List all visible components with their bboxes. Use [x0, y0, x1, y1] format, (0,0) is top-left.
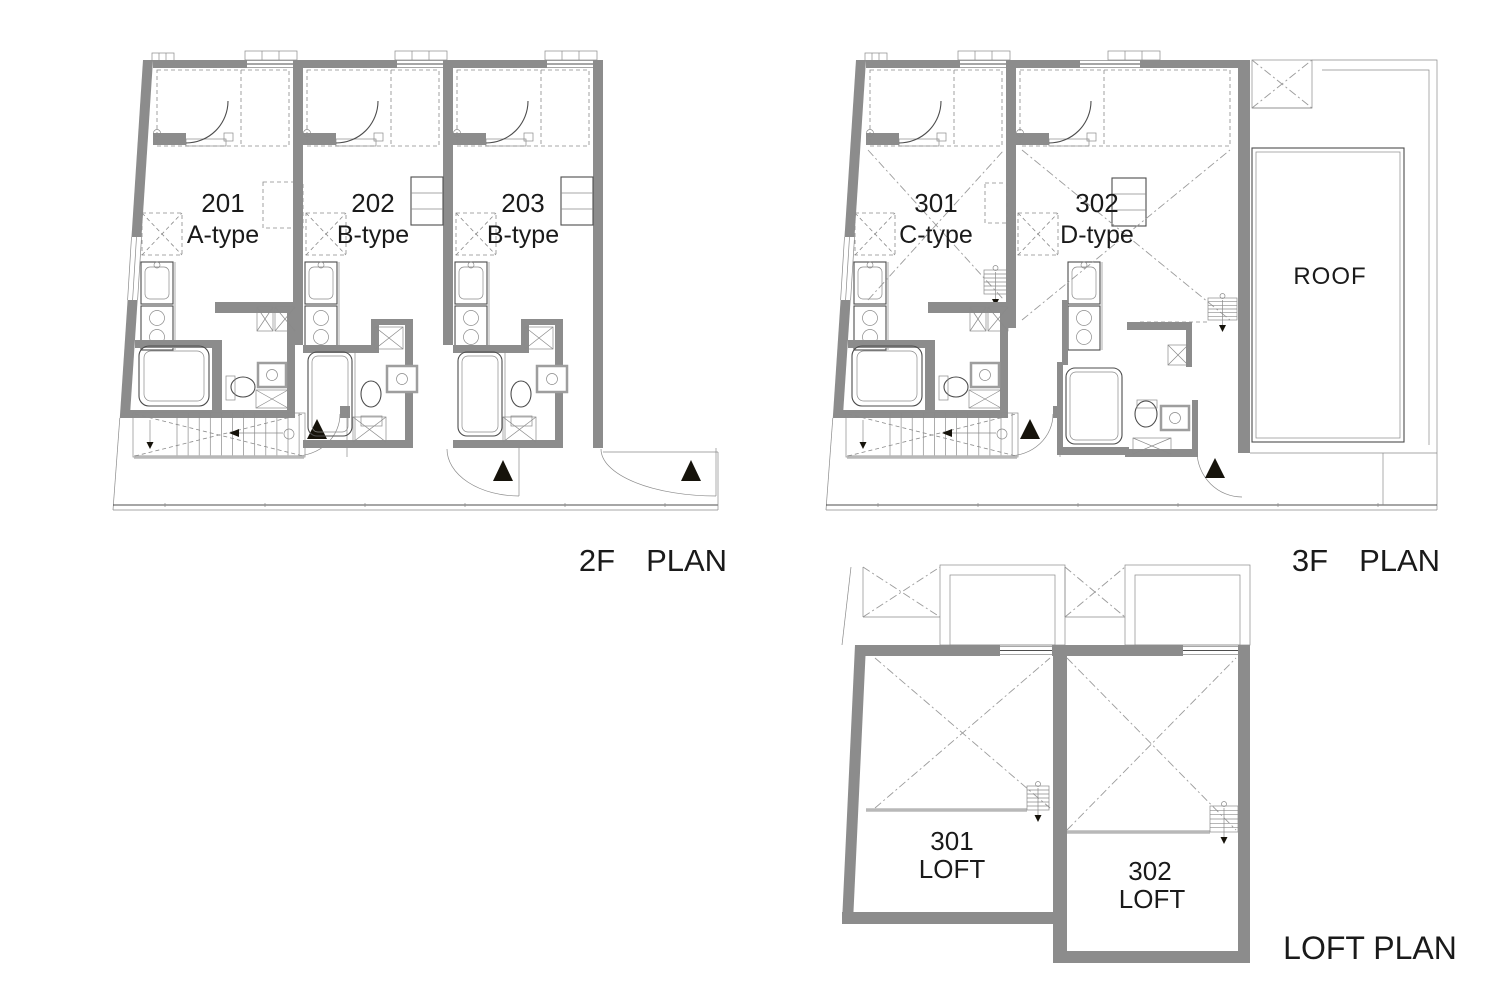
plan-2f-geometry	[113, 51, 718, 510]
bathtub	[458, 352, 502, 436]
roof-area-label: ROOF	[1293, 263, 1366, 290]
kitchen-sink	[455, 262, 487, 304]
plan-loft-labels: 301 LOFT 302 LOFT LOFT PLAN	[919, 826, 1457, 966]
bathroom-a	[842, 302, 1063, 457]
kitchen-sink	[305, 262, 337, 304]
unit-203-number: 203	[501, 188, 544, 218]
washer-space	[1018, 213, 1058, 255]
loft-302-label: LOFT	[1119, 884, 1186, 914]
washer-space	[142, 213, 182, 255]
bathtub	[1066, 368, 1122, 444]
entry-marker-icon	[1020, 419, 1040, 439]
loft-301-number: 301	[930, 826, 973, 856]
vanity-sink	[971, 363, 999, 387]
loft-302-number: 302	[1128, 856, 1171, 886]
vanity-sink	[387, 366, 417, 392]
kitchen-sink	[1068, 262, 1100, 304]
entry-marker-icon	[493, 460, 513, 481]
floorplan-sheet: 201 A-type 202 B-type 203 B-type 2F PLAN…	[0, 0, 1500, 1000]
bathroom-a	[129, 302, 350, 457]
entry-marker-icon	[681, 460, 701, 481]
loft-301-label: LOFT	[919, 854, 986, 884]
washer-space	[855, 213, 895, 255]
floorplan-drawing: 201 A-type 202 B-type 203 B-type 2F PLAN…	[0, 0, 1500, 1000]
loft-ladder	[1208, 294, 1237, 333]
stove	[1068, 306, 1100, 350]
bathroom-b	[453, 319, 567, 448]
plan-loft-geometry	[842, 565, 1250, 963]
unit-interior	[1016, 51, 1230, 350]
unit-201-type: A-type	[187, 221, 259, 249]
staircase	[846, 413, 1018, 457]
unit-301-number: 301	[914, 188, 957, 218]
toilet	[939, 376, 968, 400]
vanity-sink	[537, 366, 567, 392]
toilet	[361, 381, 382, 426]
kitchen-sink	[141, 262, 173, 304]
bathtub	[308, 352, 352, 436]
bathtub	[139, 346, 209, 406]
unit-202-number: 202	[351, 188, 394, 218]
plan-3f-title: 3F PLAN	[1292, 543, 1440, 578]
site-boundary-2f	[113, 418, 718, 510]
unit-302-type: D-type	[1060, 221, 1134, 249]
vanity-sink	[258, 363, 286, 387]
staircase	[133, 413, 305, 457]
plan-loft-title: LOFT PLAN	[1283, 930, 1457, 966]
toilet	[1135, 400, 1157, 427]
vanity-sink	[1161, 406, 1189, 430]
unit-302-number: 302	[1075, 188, 1118, 218]
unit-301-type: C-type	[899, 221, 973, 249]
unit-202-type: B-type	[337, 221, 409, 249]
bathtub	[852, 346, 922, 406]
loft-ladder	[1027, 782, 1049, 823]
loft-ladder	[984, 266, 1007, 307]
unit-203-type: B-type	[487, 221, 559, 249]
roof-outline-above-loft	[842, 565, 1250, 645]
toilet	[511, 381, 532, 426]
plan-2f-title: 2F PLAN	[579, 543, 727, 578]
unit-201-number: 201	[201, 188, 244, 218]
entry-marker-icon	[1205, 458, 1225, 478]
stove	[305, 306, 337, 350]
stove	[455, 306, 487, 350]
toilet	[226, 376, 255, 400]
